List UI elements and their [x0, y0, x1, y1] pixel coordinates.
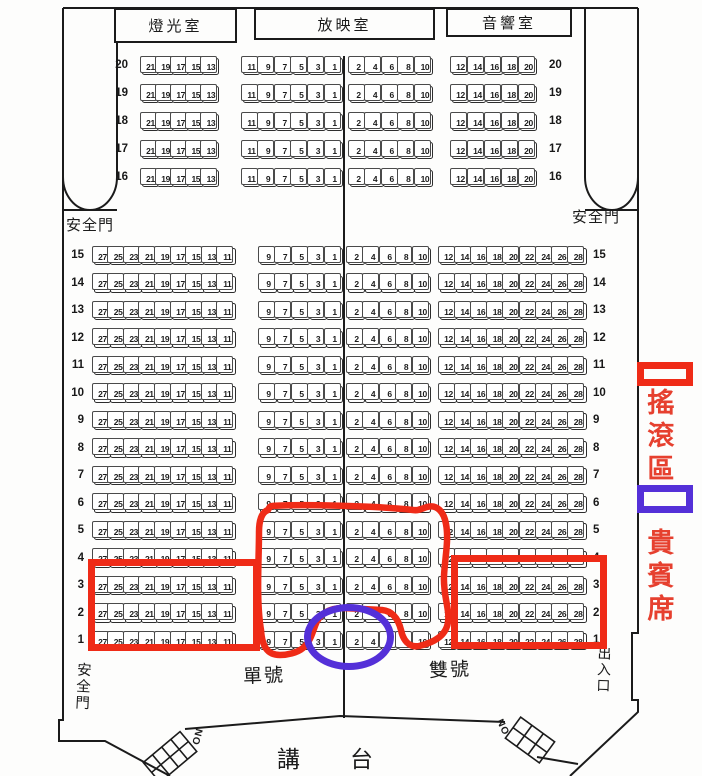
vip-annotation-oval	[304, 604, 394, 670]
legend-rock-zone-swatch	[637, 362, 693, 386]
legend-rock-zone-label: 搖滾區	[644, 388, 672, 487]
seating-chart: 燈光室 放映室 音響室 安全門 安全門 安全門 出入口 單號 雙號 講 台 ON…	[0, 0, 702, 776]
legend-vip-swatch	[637, 485, 693, 513]
legend-vip-label: 貴賓席	[644, 528, 672, 627]
